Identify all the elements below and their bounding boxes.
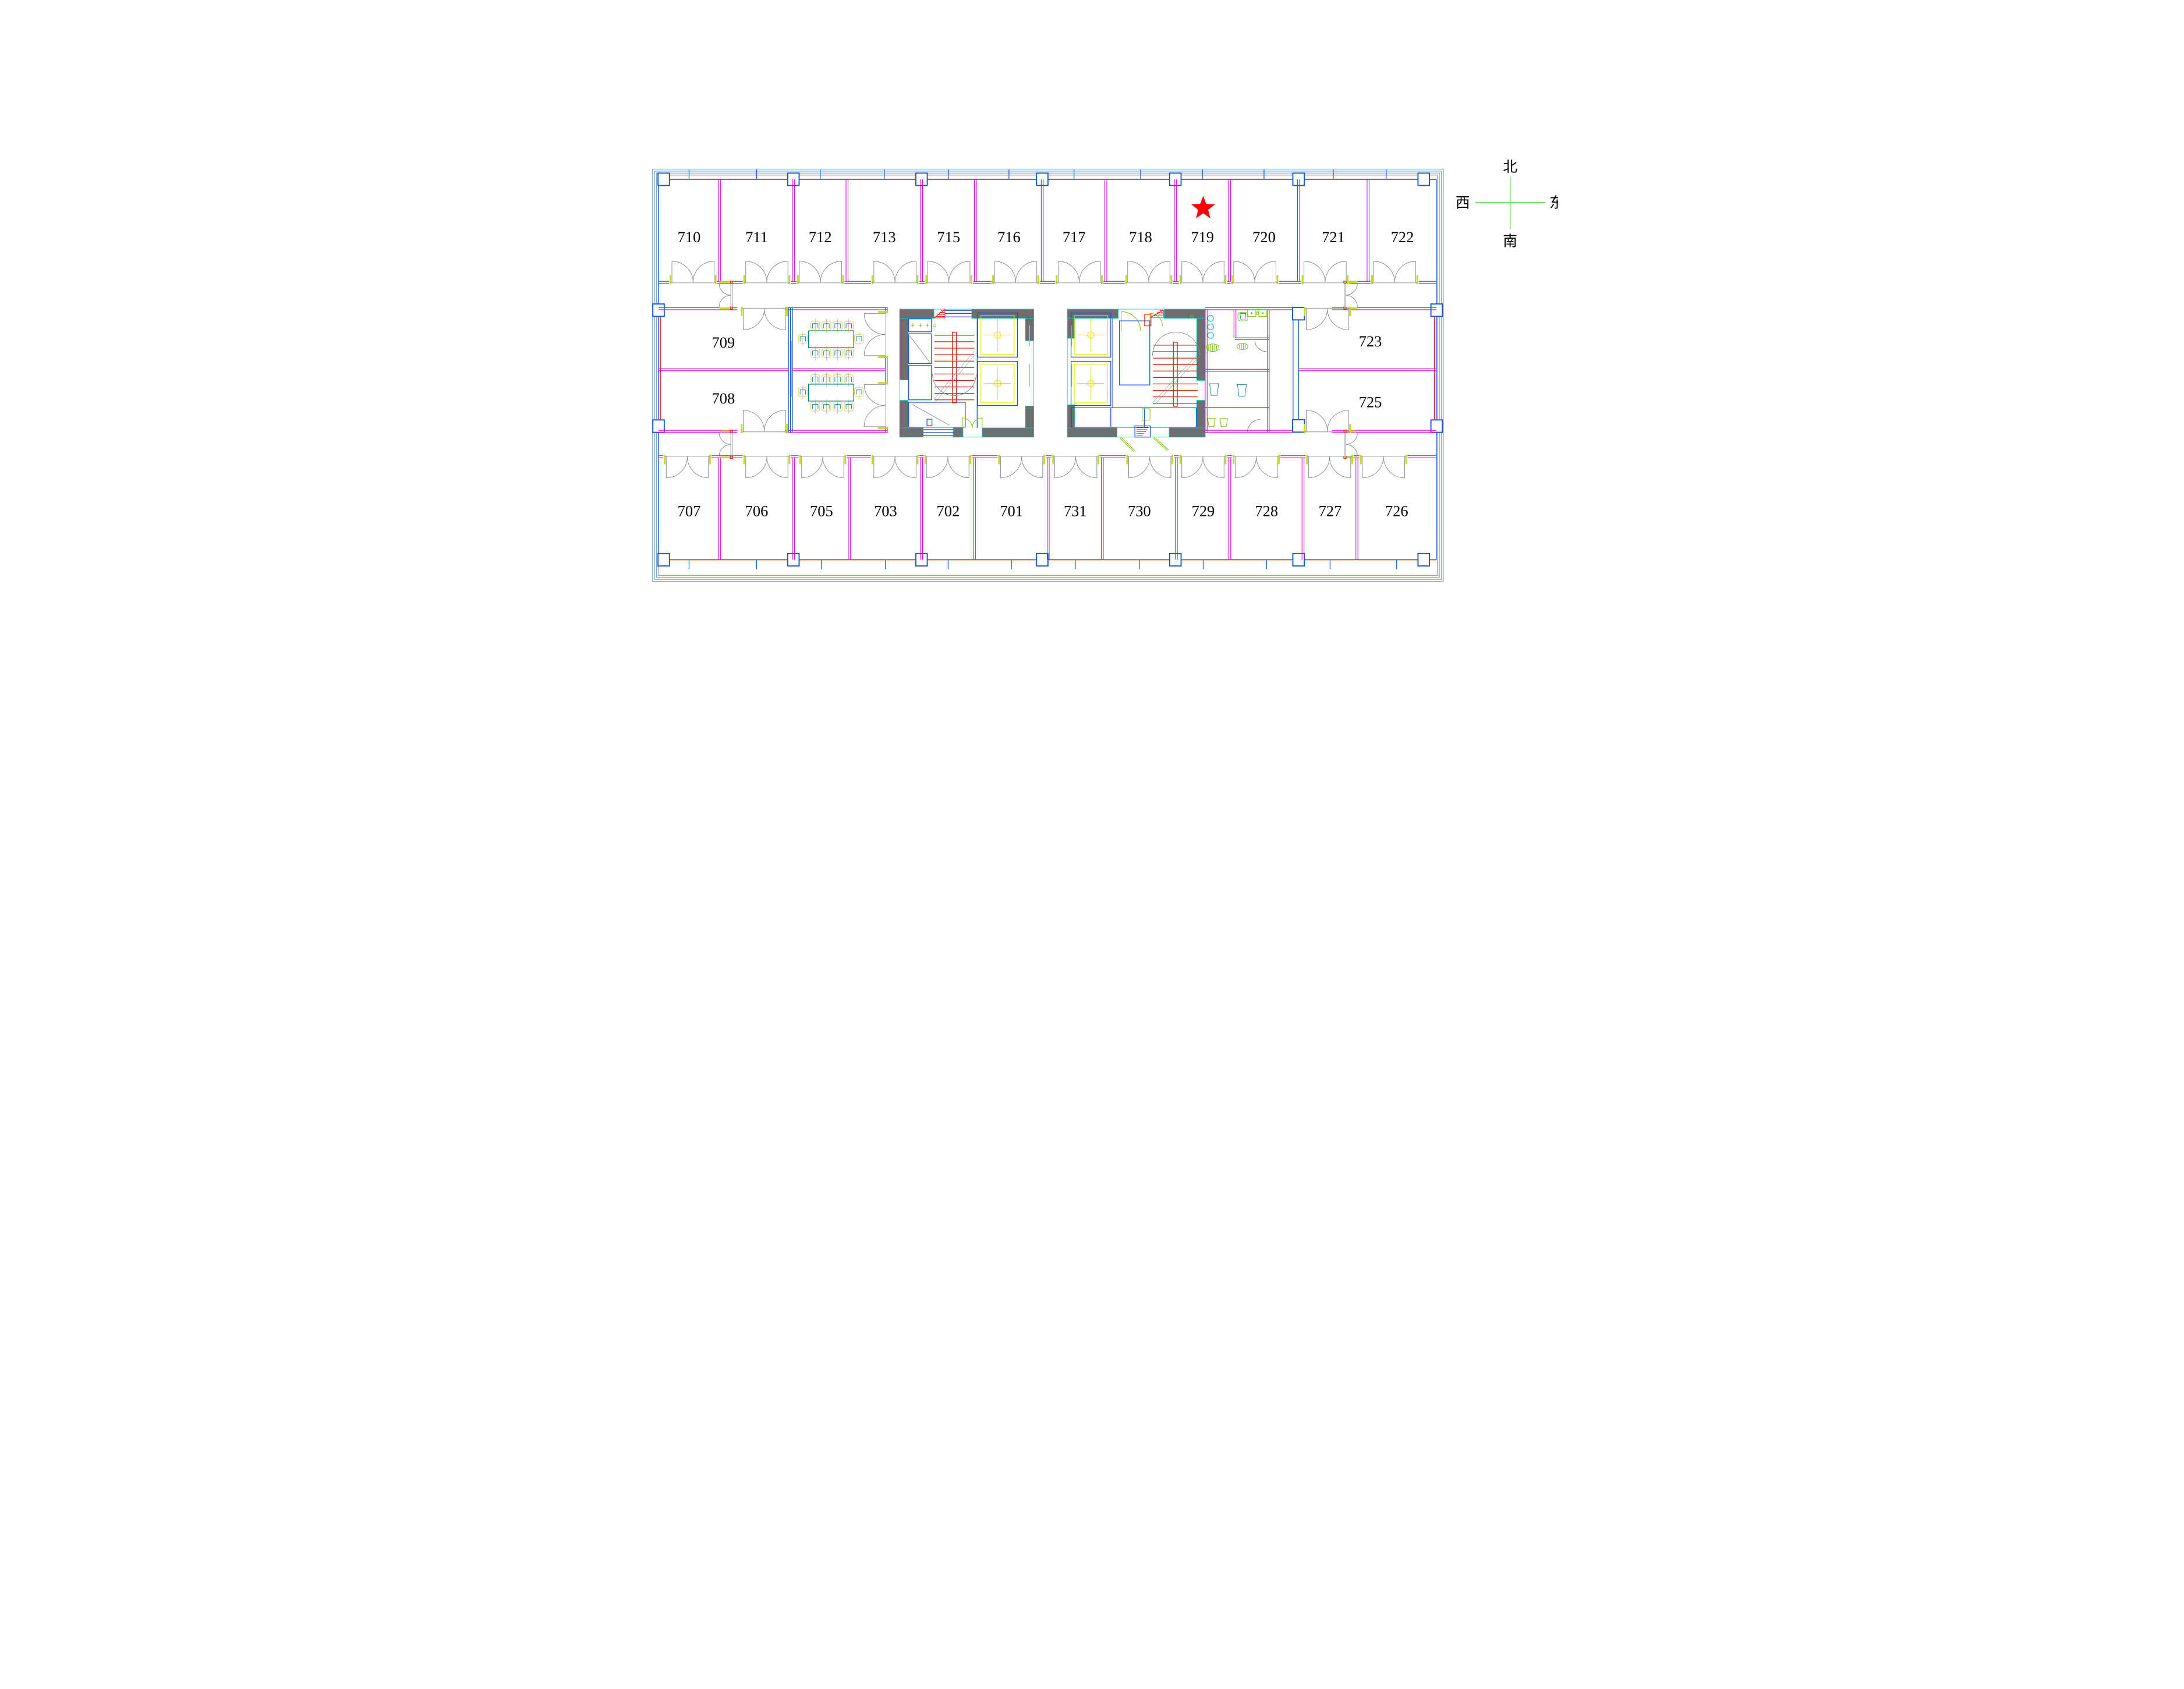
compass-north-label: 北 <box>1503 160 1517 175</box>
door-709 <box>741 307 787 330</box>
top-room-doors <box>670 261 1417 285</box>
elevator-1 <box>978 313 1017 357</box>
divider-709-708 <box>659 369 788 370</box>
room-label-709: 709 <box>712 334 735 351</box>
bottom-room-band: 707 706 705 703 702 701 731 730 729 728 … <box>664 455 1408 560</box>
compass-south-label: 南 <box>1503 233 1517 249</box>
stair-exit-hatch-west <box>934 310 945 318</box>
door-725 <box>1304 410 1350 434</box>
room-label-723: 723 <box>1358 332 1382 350</box>
meeting-room-door-bottom <box>864 383 887 429</box>
room-label-721: 721 <box>1322 228 1345 246</box>
wall-723-west <box>1293 320 1298 419</box>
room-label-701: 701 <box>1000 502 1023 519</box>
room-label-712: 712 <box>808 228 831 246</box>
room-label-719: 719 <box>1191 228 1214 246</box>
compass-east-label: 东 <box>1549 195 1558 211</box>
bottom-room-doors <box>664 455 1406 478</box>
conference-table-bottom <box>808 384 854 401</box>
wc-fixtures <box>1206 309 1268 432</box>
elevator-3 <box>1071 313 1110 357</box>
corridor-door-upper-right <box>1343 281 1357 309</box>
compass: 北 南 西 东 <box>1455 160 1558 249</box>
vent-panel <box>923 310 971 435</box>
room-label-726: 726 <box>1385 502 1408 519</box>
core-east-doors <box>1119 311 1168 451</box>
room-label-710: 710 <box>677 228 700 246</box>
core-wc <box>927 419 932 426</box>
door-708 <box>741 410 787 434</box>
floor-plan-drawing: 710 711 712 713 715 716 717 718 719 720 … <box>626 0 1558 720</box>
middle-left-rooms: 709 708 <box>659 307 792 434</box>
star-marker <box>1191 196 1215 218</box>
room-label-731: 731 <box>1063 502 1086 519</box>
elevator-4 <box>1071 362 1110 406</box>
compass-west-label: 西 <box>1455 196 1470 211</box>
elevator-2 <box>978 362 1017 406</box>
washrooms <box>1205 309 1269 432</box>
room-label-703: 703 <box>874 502 897 519</box>
room-label-705: 705 <box>810 502 833 519</box>
middle-right-rooms: 723 725 <box>1293 307 1436 434</box>
room-label-713: 713 <box>872 228 895 246</box>
door-723 <box>1304 307 1350 330</box>
meeting-room-door-top <box>864 312 887 357</box>
room-label-702: 702 <box>936 502 960 519</box>
meeting-divider <box>792 369 885 370</box>
top-room-band: 710 711 712 713 715 716 717 718 719 720 … <box>659 179 1436 284</box>
stair-east <box>1152 332 1199 406</box>
divider-723-725 <box>1299 369 1436 370</box>
stair-core-east <box>1067 309 1205 451</box>
room-label-720: 720 <box>1252 228 1276 246</box>
room-label-718: 718 <box>1129 228 1152 246</box>
room-label-730: 730 <box>1128 502 1151 519</box>
room-label-725: 725 <box>1358 394 1382 411</box>
room-label-715: 715 <box>937 228 960 246</box>
compass-cross <box>1475 177 1545 229</box>
room-label-722: 722 <box>1390 228 1414 246</box>
stair-core-west <box>900 309 1033 437</box>
room-label-708: 708 <box>712 390 735 407</box>
room-label-727: 727 <box>1318 502 1341 519</box>
corridor-door-upper-left <box>719 281 732 309</box>
sprinkler-symbols <box>911 324 929 327</box>
corridor-door-lower-right <box>1343 430 1357 458</box>
floor-plan-page: 710 711 712 713 715 716 717 718 719 720 … <box>626 0 1558 720</box>
room-label-728: 728 <box>1255 502 1278 519</box>
stair-exit-hatch-east-bottom <box>1135 426 1150 437</box>
corridor-door-lower-left <box>719 430 732 458</box>
room-label-729: 729 <box>1191 502 1215 519</box>
room-label-717: 717 <box>1062 228 1085 246</box>
meeting-rooms <box>792 307 887 432</box>
room-label-706: 706 <box>745 502 768 519</box>
stair-west <box>932 332 976 403</box>
room-label-711: 711 <box>745 228 768 246</box>
room-label-716: 716 <box>997 228 1021 246</box>
room-label-707: 707 <box>677 502 700 519</box>
conference-table-top <box>808 331 854 348</box>
